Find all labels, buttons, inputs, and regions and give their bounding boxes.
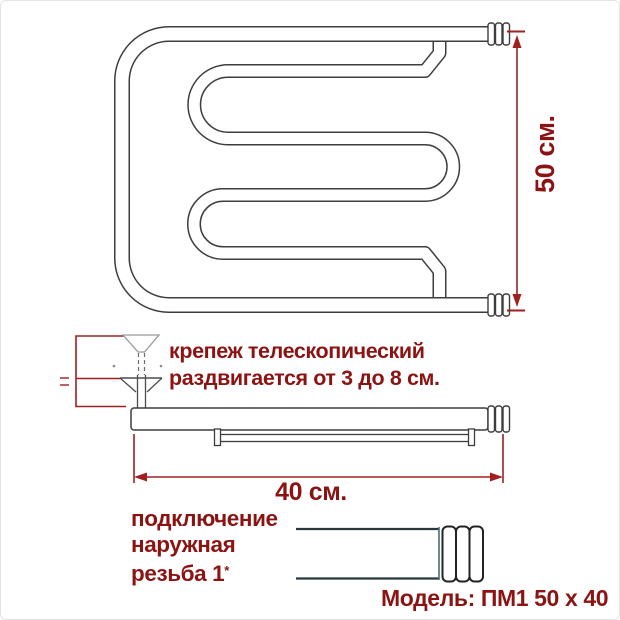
mount-note-line1: крепеж телескопический <box>169 338 440 365</box>
connection-note-line2: наружная <box>131 532 278 558</box>
thread-detail <box>296 527 483 582</box>
connection-note-line3: резьба 1* <box>131 558 278 587</box>
thread-inch-mark: * <box>224 563 229 578</box>
front-view-serpentine <box>194 29 453 311</box>
model-label: Модель: ПМ1 50 x 40 <box>381 585 607 612</box>
thread-end-bottom-icon <box>488 294 510 316</box>
product-diagram-page: 50 см. крепеж телескопический раздвигает… <box>0 0 620 620</box>
connection-note: подключение наружная резьба 1* <box>131 506 278 587</box>
height-dimension <box>507 32 525 311</box>
towel-rail-diagram <box>1 1 620 620</box>
height-dimension-label: 50 см. <box>530 115 561 193</box>
connection-note-line1: подключение <box>131 506 278 532</box>
mount-note-line2: раздвигается от 3 до 8 см. <box>169 365 440 392</box>
width-dimension-label: 40 см. <box>241 478 381 507</box>
mount-note: крепеж телескопический раздвигается от 3… <box>169 338 440 391</box>
thread-end-top-icon <box>488 23 510 45</box>
side-view <box>131 406 510 446</box>
telescopic-mount <box>60 335 162 408</box>
